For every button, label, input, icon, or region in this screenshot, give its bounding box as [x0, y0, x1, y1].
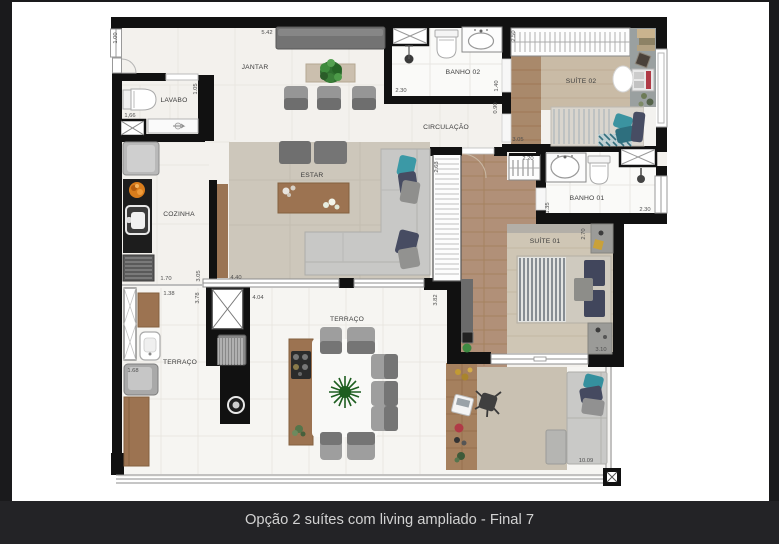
svg-text:2.20: 2.20 [522, 156, 533, 162]
svg-text:TERRAÇO: TERRAÇO [163, 359, 197, 366]
svg-text:2.70: 2.70 [581, 228, 587, 239]
svg-text:5.42: 5.42 [261, 30, 272, 36]
svg-text:3.78: 3.78 [195, 292, 201, 303]
svg-text:1.38: 1.38 [163, 291, 174, 297]
svg-text:1.40: 1.40 [494, 80, 500, 91]
svg-text:1.00: 1.00 [113, 32, 119, 43]
svg-text:CIRCULAÇÃO: CIRCULAÇÃO [423, 122, 469, 131]
svg-text:LAVABO: LAVABO [161, 97, 188, 104]
svg-text:COZINHA: COZINHA [163, 211, 195, 218]
svg-text:1.35: 1.35 [545, 202, 551, 213]
svg-text:3.10: 3.10 [595, 347, 606, 353]
svg-text:TERRAÇO: TERRAÇO [330, 316, 364, 323]
svg-text:3.05: 3.05 [512, 137, 523, 143]
svg-text:1.68: 1.68 [127, 368, 138, 374]
svg-text:1,66: 1,66 [124, 113, 135, 119]
svg-text:4.04: 4.04 [252, 295, 264, 301]
svg-text:2.30: 2.30 [395, 88, 406, 94]
svg-text:4.40: 4.40 [230, 275, 241, 281]
svg-text:ESTAR: ESTAR [301, 172, 324, 179]
svg-text:1.70: 1.70 [160, 276, 171, 282]
svg-text:SUÍTE 01: SUÍTE 01 [530, 236, 561, 245]
svg-text:BANHO 02: BANHO 02 [446, 69, 481, 76]
svg-text:1.05: 1.05 [193, 83, 199, 94]
svg-text:0.90: 0.90 [493, 102, 499, 113]
svg-text:2.30: 2.30 [639, 207, 650, 213]
svg-text:3.82: 3.82 [433, 294, 439, 305]
svg-text:3.05: 3.05 [196, 270, 202, 281]
svg-text:JANTAR: JANTAR [242, 64, 269, 71]
svg-text:SUÍTE 02: SUÍTE 02 [566, 76, 597, 85]
svg-text:2.63: 2.63 [434, 161, 440, 172]
svg-text:BANHO 01: BANHO 01 [570, 195, 605, 202]
svg-text:10.09: 10.09 [579, 458, 594, 464]
svg-text:2.50: 2.50 [511, 30, 517, 41]
